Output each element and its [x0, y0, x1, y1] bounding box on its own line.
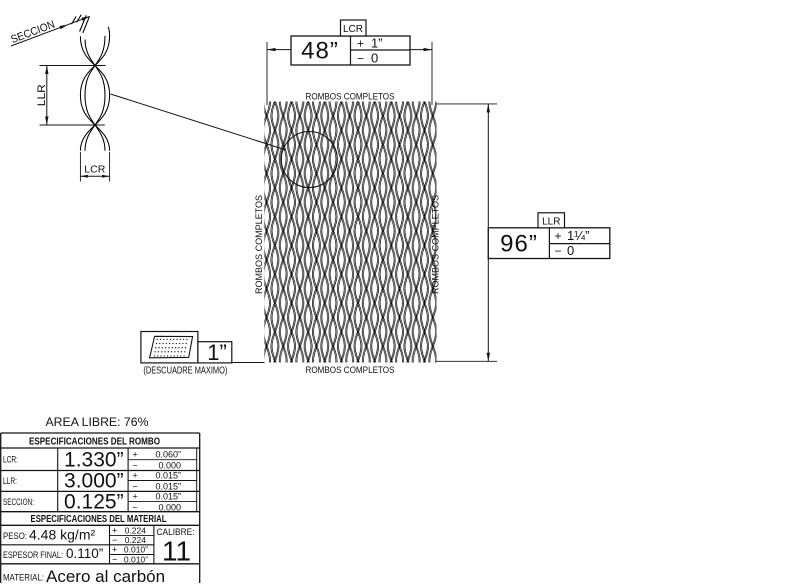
svg-text:ESPESOR FINAL:: ESPESOR FINAL: [3, 550, 63, 561]
svg-text:+: + [133, 449, 138, 459]
svg-text:0.015”: 0.015” [155, 492, 181, 502]
svg-text:0: 0 [567, 243, 574, 258]
svg-text:+: + [555, 229, 562, 243]
svg-text:96”: 96” [500, 231, 538, 258]
svg-text:(DESCUADRE MAXIMO): (DESCUADRE MAXIMO) [143, 366, 227, 377]
svg-text:+: + [357, 37, 364, 51]
svg-text:LLR:: LLR: [3, 476, 17, 487]
svg-text:1¼”: 1¼” [567, 228, 589, 243]
svg-text:0.010”: 0.010” [124, 545, 148, 555]
svg-text:0.000: 0.000 [158, 502, 181, 512]
svg-text:1”: 1” [207, 340, 227, 365]
svg-text:−: − [112, 554, 117, 564]
svg-text:0.125”: 0.125” [64, 490, 124, 513]
svg-text:SECCION:: SECCION: [3, 497, 34, 508]
svg-text:LLR: LLR [36, 84, 48, 106]
svg-text:ROMBOS COMPLETOS: ROMBOS COMPLETOS [254, 195, 264, 294]
svg-text:0.110”: 0.110” [66, 546, 103, 561]
svg-text:−: − [133, 481, 138, 491]
svg-text:ESPECIFICACIONES DEL ROMBO: ESPECIFICACIONES DEL ROMBO [29, 435, 160, 447]
svg-text:0.000: 0.000 [158, 461, 181, 471]
svg-text:LCR: LCR [343, 24, 363, 35]
svg-text:3.000”: 3.000” [64, 470, 124, 493]
svg-text:0.015”: 0.015” [155, 481, 181, 491]
svg-text:+: + [112, 526, 117, 536]
svg-text:+: + [133, 471, 138, 481]
svg-text:+: + [112, 545, 117, 555]
svg-text:1”: 1” [371, 36, 383, 51]
svg-text:ESPECIFICACIONES DEL MATERIAL: ESPECIFICACIONES DEL MATERIAL [31, 513, 167, 525]
svg-text:0.010”: 0.010” [124, 554, 148, 564]
svg-text:LCR: LCR [84, 165, 105, 176]
svg-text:+: + [133, 492, 138, 502]
svg-text:MATERIAL:: MATERIAL: [3, 573, 44, 583]
svg-text:0.015”: 0.015” [155, 471, 181, 481]
svg-text:LCR:: LCR: [3, 455, 18, 466]
svg-text:LLR: LLR [542, 217, 560, 228]
svg-text:−: − [555, 244, 562, 258]
svg-text:0.224: 0.224 [125, 535, 147, 545]
svg-text:ROMBOS COMPLETOS: ROMBOS COMPLETOS [306, 92, 395, 102]
svg-text:ROMBOS COMPLETOS: ROMBOS COMPLETOS [306, 365, 395, 375]
svg-text:Acero al carbón: Acero al carbón [46, 567, 165, 583]
svg-text:AREA LIBRE: 76%: AREA LIBRE: 76% [46, 417, 149, 429]
svg-text:4.48 kg/m²: 4.48 kg/m² [29, 527, 95, 543]
svg-text:48”: 48” [301, 38, 339, 65]
svg-text:−: − [357, 51, 364, 65]
svg-text:1.330”: 1.330” [64, 448, 124, 471]
svg-text:−: − [133, 502, 138, 512]
svg-text:ROMBOS COMPLETOS: ROMBOS COMPLETOS [431, 195, 441, 294]
svg-text:PESO:: PESO: [3, 531, 27, 542]
svg-text:−: − [112, 535, 117, 545]
svg-text:−: − [133, 461, 138, 471]
svg-text:0: 0 [371, 50, 378, 65]
svg-text:11: 11 [162, 536, 191, 567]
svg-text:0.060”: 0.060” [155, 449, 181, 459]
svg-text:0.224: 0.224 [125, 526, 147, 536]
